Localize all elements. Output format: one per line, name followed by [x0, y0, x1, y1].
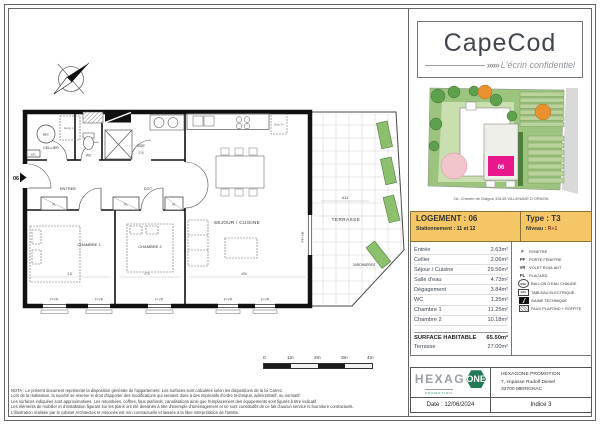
window-label: F+VR	[50, 298, 59, 302]
area-row: WC1.25m²	[414, 295, 508, 305]
pl-label: PL	[52, 203, 56, 207]
gtl-key-icon: GTL	[518, 289, 529, 296]
nota-text: NOTA : Le présent document représente la…	[11, 388, 405, 415]
date-cell: Date : 12/06/2024	[411, 398, 491, 412]
terrace-door	[307, 215, 314, 255]
window-label: F+VR	[95, 298, 104, 302]
dining-table	[216, 148, 264, 196]
double-sink-icon	[150, 115, 184, 130]
promoter-address: HEXAGONE PROMOTION 7, impasse Rudolf Die…	[491, 368, 591, 398]
niveau-value: R+1	[548, 226, 558, 232]
site-plan-caption: 2A, Chemin de Galgon 33140 VILLENAVE D'O…	[410, 196, 592, 201]
area-row: Séjour / Cuisine29.56m²	[414, 265, 508, 275]
pl-label: PL	[124, 203, 128, 207]
legend-item: GAINE TECHNIQUE	[516, 296, 589, 304]
gaine-technique-icon	[105, 113, 131, 123]
window-label: F+VR	[224, 298, 233, 302]
floor-plan: 411 TERRASSE JARDINIERES	[13, 100, 405, 315]
dim-chambre1: 311	[67, 272, 72, 276]
room-label-wc: WC	[86, 154, 92, 158]
hexagon-icon: ONE	[466, 370, 486, 388]
dim-chambre2: 270	[144, 272, 150, 276]
logement-value: 06	[468, 214, 477, 223]
surface-habitable-row: SURFACE HABITABLE65.50m²	[414, 332, 508, 341]
legend-item: BECBALLON D'EAU CHAUDE	[516, 280, 589, 288]
brand-name: CapeCod	[444, 31, 557, 56]
terrace-door-label: PF+VR	[301, 231, 305, 243]
terrace-dim: 411	[342, 195, 349, 200]
area-row: Dégagement3.84m²	[414, 285, 508, 295]
dim-sejour: 455	[241, 272, 247, 276]
terrasse-row: Terrasse27.00m²	[414, 344, 508, 350]
logement-label: LOGEMENT :	[416, 214, 466, 223]
scale-bar: 0 1m 2m 3m 4m	[263, 356, 375, 369]
room-label-sejour: SEJOUR / CUISINE	[214, 220, 260, 225]
niveau-label: Niveau :	[526, 226, 546, 232]
room-label-chambre1: CHAMBRE 1	[77, 242, 101, 247]
hexagone-logo: HEXAG ONE PROMOTION	[411, 368, 491, 398]
legend-item: VRVOLET ROULANT	[516, 263, 589, 271]
terrace-area: 411 TERRASSE JARDINIERES	[310, 100, 405, 310]
legend-item: PFPORTE FENETRE	[516, 255, 589, 263]
indice-cell: Indice 3	[491, 398, 591, 412]
room-label-cellier: CELLIER	[43, 146, 59, 150]
stationnement-value: 11 et 12	[457, 226, 476, 232]
site-unit-number: 06	[498, 165, 505, 171]
right-panel-separator	[408, 9, 409, 416]
washer-label: Emp. LL	[64, 126, 76, 130]
gaine-key-icon	[519, 297, 529, 304]
fridge-label: Emp. Fr	[274, 123, 283, 127]
room-label-sde: SDE	[137, 143, 146, 148]
brand-box: CapeCod »»» L'écrin confidentiel	[417, 21, 583, 78]
tagline-rule	[425, 65, 485, 66]
sde-dim: 215	[138, 151, 144, 155]
site-plan: 06	[424, 84, 578, 194]
area-row: Chambre 111.25m²	[414, 306, 508, 316]
type-value: T3	[551, 214, 560, 223]
area-row: Salle d'eau4.73m²	[414, 275, 508, 285]
terrace-label: TERRASSE	[332, 217, 361, 222]
room-label-entree: ENTREE	[60, 186, 77, 191]
legend-item: FFENETRE	[516, 247, 589, 255]
title-block: HEXAG ONE PROMOTION HEXAGONE PROMOTION 7…	[410, 367, 592, 413]
stationnement-label: Stationnement :	[416, 226, 455, 232]
soffite-key-icon	[519, 305, 529, 312]
legend-item: FAUX PLAFOND + SOFFITE	[516, 304, 589, 312]
entrance-number: 06	[13, 176, 19, 182]
legend-item: PLPLACARD	[516, 272, 589, 280]
compass-icon	[45, 56, 97, 102]
legend: FFENETRE PFPORTE FENETRE VRVOLET ROULANT…	[512, 242, 591, 355]
gtl-label: GTL	[31, 153, 37, 157]
room-label-dgt: DGT	[144, 186, 153, 191]
jardinieres-label: JARDINIERES	[353, 263, 376, 267]
toilet-icon	[84, 137, 94, 150]
areas-table: Entrée2.63m² Cellier2.06m² Séjour / Cuis…	[410, 242, 592, 356]
area-row: Entrée2.63m²	[414, 245, 508, 255]
pl-label: PL	[172, 203, 176, 207]
soffite-hatch	[83, 112, 103, 123]
window-label: F+VR	[261, 298, 270, 302]
area-row: Cellier2.06m²	[414, 255, 508, 265]
brand-tagline: L'écrin confidentiel	[501, 60, 575, 70]
area-row: Chambre 210.18m²	[414, 316, 508, 326]
bec-label: BEC	[43, 133, 50, 137]
chevrons-icon: »»»	[487, 60, 499, 70]
legend-item: GTLTABLEAU ELECTRIQUE	[516, 288, 589, 296]
unit-header: LOGEMENT : 06 Stationnement : 11 et 12 T…	[410, 211, 592, 242]
plan-sheet: 411 TERRASSE JARDINIERES	[0, 0, 600, 425]
window-label: F+VR	[155, 298, 164, 302]
room-label-chambre2: CHAMBRE 2	[138, 244, 162, 249]
type-label: Type :	[526, 214, 549, 223]
